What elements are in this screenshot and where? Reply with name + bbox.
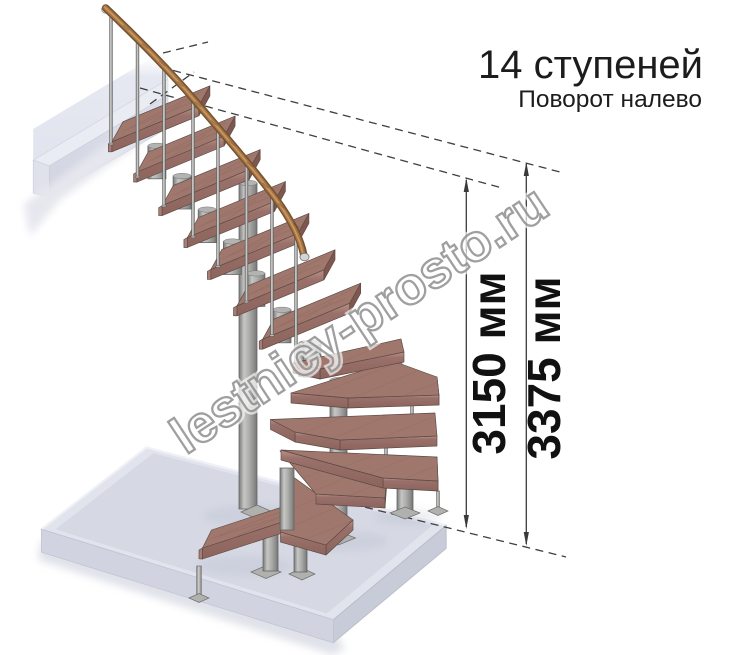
svg-text:Поворот налево: Поворот налево	[518, 86, 702, 113]
svg-text:3150 мм: 3150 мм	[463, 271, 515, 454]
svg-text:14 ступеней: 14 ступеней	[478, 43, 703, 87]
svg-text:3375 мм: 3375 мм	[518, 276, 570, 459]
